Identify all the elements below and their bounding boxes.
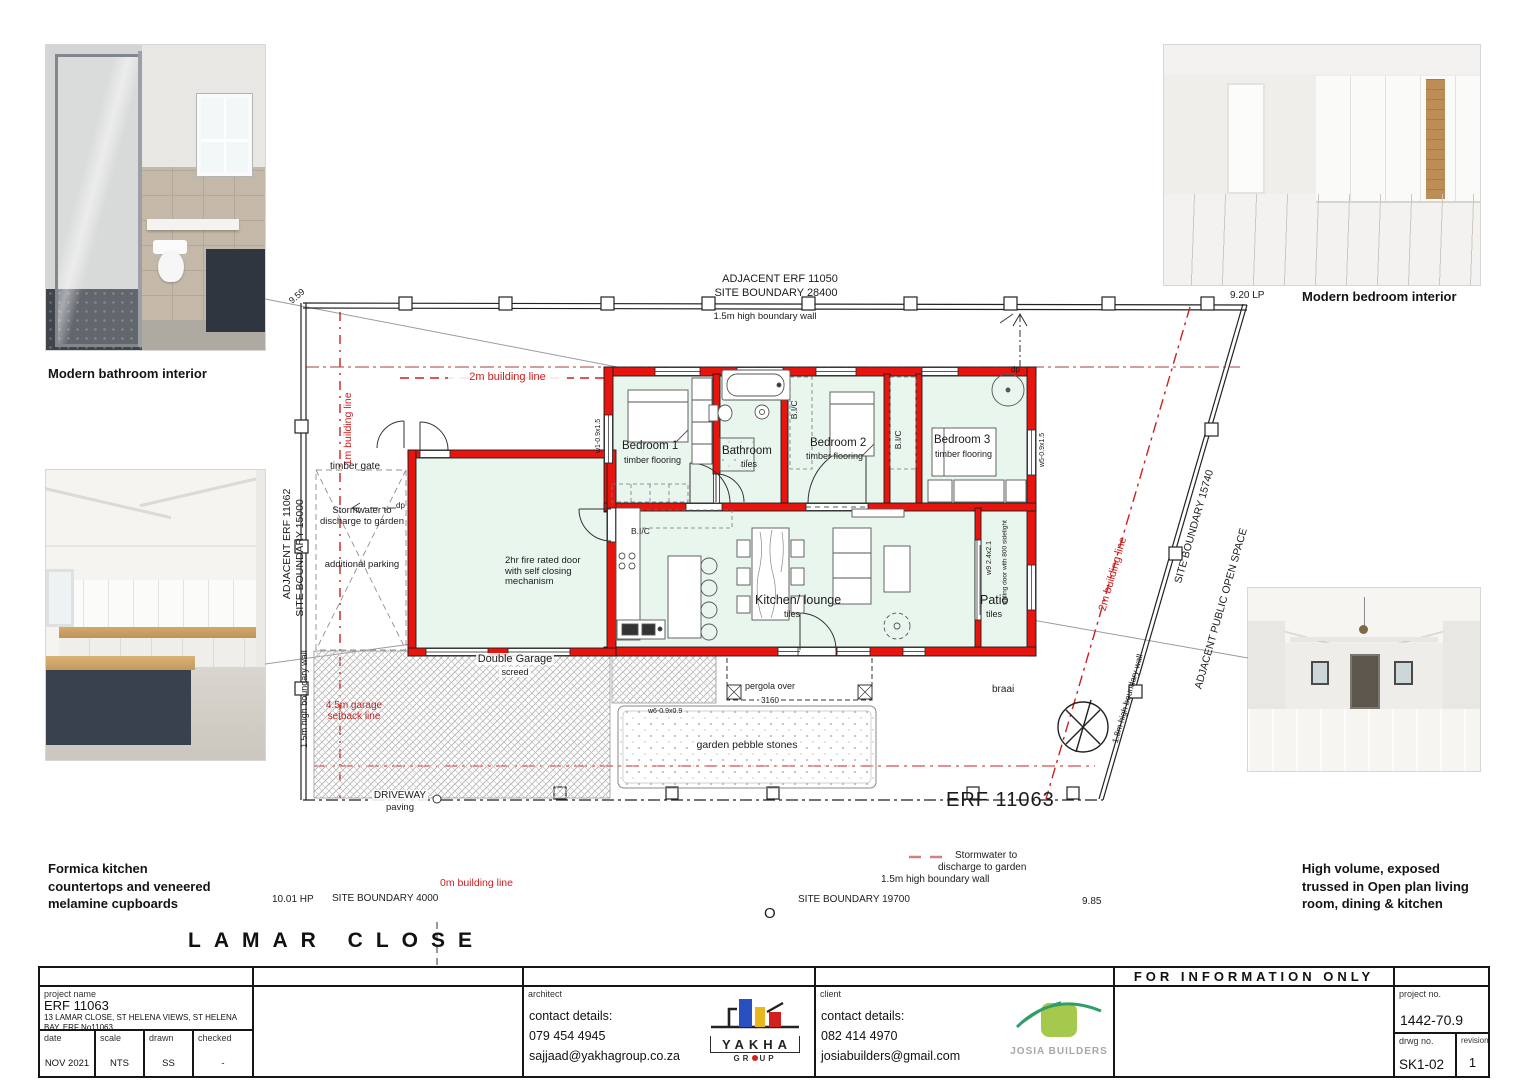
bic-label-3: B.I/C: [631, 527, 650, 537]
drawn-value: SS: [145, 1058, 192, 1069]
client-label: client: [820, 989, 841, 999]
pergola-text: pergola over: [743, 681, 797, 691]
for-information-only-text: FOR INFORMATION ONLY: [1115, 969, 1393, 984]
timber-gate-label: timber gate: [330, 461, 380, 472]
pergola: [727, 651, 872, 700]
room-bedroom1-floor: timber flooring: [624, 455, 681, 465]
revision-value: 1: [1457, 1055, 1488, 1070]
window-tag-w1: w1-0.9x1.5: [595, 406, 603, 466]
checked-value: -: [194, 1058, 252, 1069]
yakha-dot-icon: [752, 1055, 758, 1061]
boundary-wall-bottom-label: 1.5m high boundary wall: [881, 874, 989, 885]
date-cell: date NOV 2021: [38, 1029, 96, 1078]
north-compass-icon: [1058, 700, 1108, 752]
road-name-lamar-close: LAMAR CLOSE: [188, 929, 485, 953]
sliding-door-tag: sliding door with 800 sidelight: [1001, 483, 1008, 643]
project-no-label: project no.: [1399, 989, 1441, 999]
fire-door-note-line3: mechanism: [505, 577, 581, 588]
drwg-no-label: drwg no.: [1399, 1036, 1434, 1046]
paving-label: paving: [360, 803, 440, 814]
yakha-text: YAKHA: [722, 1037, 792, 1052]
architect-phone: 079 454 4945: [529, 1029, 605, 1043]
checked-label: checked: [198, 1033, 232, 1043]
site-boundary-4000-label: SITE BOUNDARY 4000: [332, 893, 438, 904]
date-value: NOV 2021: [40, 1058, 94, 1069]
driveway-label: DRIVEWAY: [360, 790, 440, 801]
bic-label-2: B.I/C: [894, 425, 904, 455]
architect-cell: architect contact details: 079 454 4945 …: [522, 985, 816, 1078]
room-bedroom2: Bedroom 2: [810, 437, 866, 450]
date-label: date: [44, 1033, 62, 1043]
window-tag-w5: w5-0.9x1.5: [1039, 420, 1047, 480]
titleblock-topstrip-b: [252, 966, 524, 987]
site-boundary-top-label: SITE BOUNDARY 28400: [696, 287, 856, 299]
dim-9-85: 9.85: [1082, 896, 1101, 907]
architect-contact-label: contact details:: [529, 1009, 612, 1023]
room-patio-floor: tiles: [986, 609, 1002, 619]
client-cell: client contact details: 082 414 4970 jos…: [814, 985, 1115, 1078]
yakha-wordmark: YAKHA: [710, 1036, 800, 1053]
room-bedroom2-floor: timber flooring: [806, 451, 863, 461]
boundary-wall-top-label: 1.5m high boundary wall: [700, 312, 830, 323]
project-name-value: ERF 11063: [44, 998, 109, 1013]
yakha-skyline-icon: [703, 993, 807, 1031]
architect-label: architect: [528, 989, 562, 999]
drwg-no-cell: drwg no. SK1-02: [1393, 1032, 1457, 1078]
client-contact-label: contact details:: [821, 1009, 904, 1023]
group-right-text: UP: [759, 1054, 776, 1063]
boundary-wall-left-label: 1.5m high boundary wall: [299, 634, 309, 764]
client-email: josiabuilders@gmail.com: [821, 1049, 960, 1063]
site-boundary-19700-label: SITE BOUNDARY 19700: [798, 894, 910, 905]
architect-email: sajjaad@yakhagroup.co.za: [529, 1049, 680, 1063]
access-arrow: [1000, 314, 1027, 372]
josia-builders-logo: JOSIA BUILDERS: [1004, 995, 1114, 1057]
revision-label: revision: [1461, 1036, 1489, 1045]
project-no-cell: project no. 1442-70.9: [1393, 985, 1490, 1034]
site-boundary-left-label: SITE BOUNDARY 15000: [295, 478, 307, 638]
double-garage-label: Double Garage: [465, 653, 565, 665]
room-bedroom3-floor: timber flooring: [935, 449, 992, 459]
scale-value: NTS: [96, 1058, 143, 1069]
titleblock-empty-cell: [252, 985, 524, 1078]
garage-screed-text: screed: [499, 667, 530, 677]
pergola-dim-label: 3160: [720, 697, 820, 706]
garage-setback-line-label: 4.5m garage setback line: [314, 700, 394, 722]
drawn-cell: drawn SS: [143, 1029, 194, 1078]
braai-label: braai: [992, 684, 1014, 695]
room-bathroom-floor: tiles: [741, 459, 757, 469]
checked-cell: checked -: [192, 1029, 254, 1078]
additional-parking-label: additional parking: [312, 560, 412, 571]
dim-10-01-hp: 10.01 HP: [272, 894, 314, 905]
room-bedroom3: Bedroom 3: [934, 434, 990, 447]
titleblock-topstrip-f: [1393, 966, 1490, 987]
titleblock-topstrip-d: [814, 966, 1115, 987]
room-kitchen-lounge: Kitchen/ lounge: [755, 593, 841, 607]
room-bedroom1: Bedroom 1: [622, 440, 678, 453]
manhole-symbol: O: [764, 906, 776, 923]
titleblock-topstrip-a: [38, 966, 254, 987]
driveway-text: DRIVEWAY: [372, 790, 428, 801]
building-line-2m-label: 2m building line: [448, 371, 567, 383]
dp-label-bedroom3: dp: [1011, 366, 1020, 375]
stormwater-note-bottom-line2: discharge to garden: [938, 862, 1026, 873]
stormwater-note-bottom-line1: Stormwater to: [955, 850, 1017, 861]
room-kitchen-floor: tiles: [784, 609, 800, 619]
group-left-text: GR: [733, 1054, 751, 1063]
yakha-group-line: GRUP: [700, 1054, 810, 1063]
client-phone: 082 414 4970: [821, 1029, 897, 1043]
room-bathroom: Bathroom: [722, 445, 772, 458]
garage-floor-label: screed: [465, 667, 565, 677]
building-line-0m-label: 0m building line: [440, 878, 513, 890]
scale-cell: scale NTS: [94, 1029, 145, 1078]
dp-label-garage: dp: [396, 502, 405, 511]
project-no-value: 1442-70.9: [1400, 1012, 1463, 1028]
drwg-no-value: SK1-02: [1399, 1057, 1444, 1072]
yakha-group-logo: YAKHA GRUP: [700, 993, 810, 1063]
garage-setback-line1: 4.5m garage: [314, 700, 394, 711]
garage-setback-line2: setback line: [314, 711, 394, 722]
for-information-only-cell: FOR INFORMATION ONLY: [1113, 966, 1395, 987]
stormwater-yard-line2: discharge to garden: [312, 517, 412, 528]
josia-house-icon: [1011, 995, 1107, 1041]
pergola-dim-text: 3160: [759, 696, 781, 705]
project-name-cell: project name ERF 11063 13 LAMAR CLOSE, S…: [38, 985, 254, 1031]
titleblock-topstrip-c: [522, 966, 816, 987]
adjacent-erf-top-label: ADJACENT ERF 11050: [700, 273, 860, 285]
garden-pebbles-text: garden pebble stones: [695, 739, 800, 751]
dim-9-20-lp: 9.20 LP: [1230, 290, 1264, 301]
bic-label-1: B.I/C: [790, 395, 800, 425]
drawn-label: drawn: [149, 1033, 174, 1043]
pergola-over-label: pergola over: [720, 681, 820, 691]
scale-label: scale: [100, 1033, 121, 1043]
josia-builders-text: JOSIA BUILDERS: [1004, 1046, 1114, 1057]
drawing-sheet: Modern bathroom interior Modern bedroom …: [0, 0, 1528, 1080]
window-tag-w9: w9 2.4x2.1: [986, 528, 994, 588]
titleblock-empty-cell-e: [1113, 985, 1395, 1078]
erf-11063-label: ERF 11063: [946, 789, 1055, 811]
window-tag-w6: w6-0.9x0.9: [648, 708, 682, 716]
adjacent-erf-left-label: ADJACENT ERF 11062: [282, 464, 294, 624]
double-garage-text: Double Garage: [476, 653, 555, 665]
garden-pebble-stones-label: garden pebble stones: [677, 740, 817, 752]
revision-cell: revision 1: [1455, 1032, 1490, 1078]
fire-door-note: 2hr fire rated door with self closing me…: [505, 556, 581, 588]
